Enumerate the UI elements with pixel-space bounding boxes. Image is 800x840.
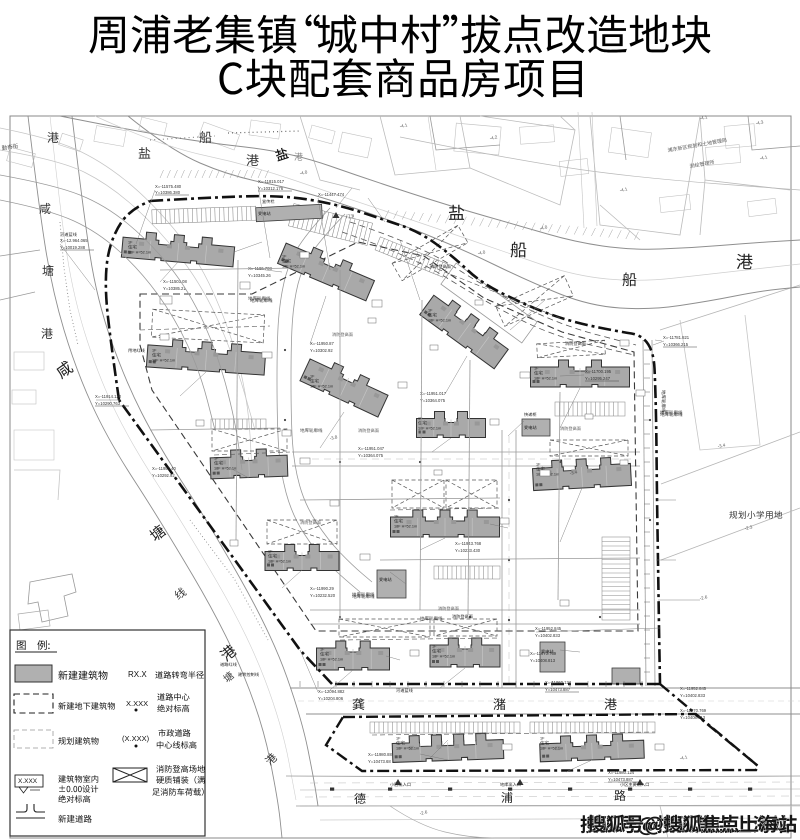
svg-text:18F H=52.1m: 18F H=52.1m bbox=[534, 377, 557, 381]
svg-text:1F: 1F bbox=[320, 648, 325, 652]
svg-text:1F: 1F bbox=[310, 375, 315, 379]
svg-text:Y=10232.520: Y=10232.520 bbox=[310, 593, 336, 598]
svg-text:Y=10312.176: Y=10312.176 bbox=[258, 186, 284, 191]
svg-text:18F H=52.1m: 18F H=52.1m bbox=[396, 747, 419, 751]
svg-text:X=-11914.120: X=-11914.120 bbox=[95, 394, 122, 399]
svg-text:Y=10233.430: Y=10233.430 bbox=[455, 548, 481, 553]
svg-text:Y=10386.380: Y=10386.380 bbox=[155, 190, 181, 195]
svg-text:Y=10364.075: Y=10364.075 bbox=[358, 453, 384, 458]
svg-text:X=-11952.845: X=-11952.845 bbox=[680, 686, 707, 691]
svg-text:18F H=52.1m: 18F H=52.1m bbox=[394, 525, 417, 529]
svg-text:X=-11990.29: X=-11990.29 bbox=[310, 586, 334, 591]
svg-text:Y=10473.887: Y=10473.887 bbox=[608, 777, 634, 782]
svg-text:X=-11951.047: X=-11951.047 bbox=[358, 446, 385, 451]
svg-text:Y=10385.21: Y=10385.21 bbox=[163, 286, 186, 291]
svg-text:(X.XXX): (X.XXX) bbox=[122, 734, 150, 743]
svg-text:X=-11700.195: X=-11700.195 bbox=[585, 369, 612, 374]
svg-text:X=-11575.480: X=-11575.480 bbox=[155, 184, 182, 189]
svg-text:18F H=52.1m: 18F H=52.1m bbox=[320, 658, 343, 662]
svg-text:18F H=52.1m: 18F H=52.1m bbox=[128, 251, 151, 255]
svg-text:1F: 1F bbox=[282, 255, 287, 259]
svg-text:X=-11970.769: X=-11970.769 bbox=[680, 708, 707, 713]
svg-text:1F: 1F bbox=[428, 309, 433, 313]
svg-text:Y=10302.92: Y=10302.92 bbox=[310, 348, 333, 353]
svg-text:1F: 1F bbox=[536, 463, 541, 467]
svg-text:1F: 1F bbox=[152, 349, 157, 353]
svg-text:Y=10345.26: Y=10345.26 bbox=[248, 273, 271, 278]
svg-text:X.XXX: X.XXX bbox=[126, 699, 148, 708]
svg-text:Y=10402.833: Y=10402.833 bbox=[680, 693, 706, 698]
svg-text:Y=10402.833: Y=10402.833 bbox=[535, 633, 561, 638]
svg-text:X=-11950.40: X=-11950.40 bbox=[152, 466, 176, 471]
svg-text:X=-12094.882: X=-12094.882 bbox=[318, 689, 345, 694]
svg-text:X=-11447.474: X=-11447.474 bbox=[318, 192, 345, 197]
svg-text:18F H=52.1m: 18F H=52.1m bbox=[268, 560, 291, 564]
svg-text:18F H=52.1m: 18F H=52.1m bbox=[428, 319, 451, 323]
svg-text:1F: 1F bbox=[534, 367, 539, 371]
svg-text:Y=10295.247: Y=10295.247 bbox=[585, 376, 611, 381]
svg-text:Y=10473.887: Y=10473.887 bbox=[545, 687, 571, 692]
svg-text:X=-12.964.065: X=-12.964.065 bbox=[60, 238, 88, 243]
svg-text:Y=10408.813: Y=10408.813 bbox=[680, 715, 706, 720]
svg-text:1F: 1F bbox=[128, 241, 133, 245]
svg-text:X=-11950.87: X=-11950.87 bbox=[310, 341, 334, 346]
svg-text:1F: 1F bbox=[214, 457, 219, 461]
svg-text:X=-11980.124: X=-11980.124 bbox=[608, 770, 635, 775]
svg-text:RX.X: RX.X bbox=[128, 670, 147, 679]
svg-text:18F H=52.1m: 18F H=52.1m bbox=[152, 359, 175, 363]
svg-text:Y=10408.813: Y=10408.813 bbox=[530, 658, 556, 663]
svg-text:X=-11960.124: X=-11960.124 bbox=[545, 680, 572, 685]
svg-text:18F H=52.1m: 18F H=52.1m bbox=[310, 385, 333, 389]
svg-text:Y=10364.075: Y=10364.075 bbox=[420, 398, 446, 403]
svg-text:X=-11781.821: X=-11781.821 bbox=[663, 335, 690, 340]
svg-text:Y=10366.215: Y=10366.215 bbox=[663, 342, 689, 347]
svg-text:Y=10204.806: Y=10204.806 bbox=[318, 696, 344, 701]
svg-text:1F: 1F bbox=[432, 645, 437, 649]
svg-text:1F: 1F bbox=[394, 515, 399, 519]
svg-text:18F H=52.1m: 18F H=52.1m bbox=[432, 655, 455, 659]
svg-text:X=-11815.017: X=-11815.017 bbox=[258, 179, 285, 184]
svg-text:X=-11980.88: X=-11980.88 bbox=[368, 752, 392, 757]
svg-text:Y=10473.68: Y=10473.68 bbox=[368, 759, 391, 764]
svg-text:X=-11952.845: X=-11952.845 bbox=[535, 626, 562, 631]
svg-text:1F: 1F bbox=[418, 417, 423, 421]
svg-text:1F: 1F bbox=[540, 737, 545, 741]
svg-text:1F: 1F bbox=[268, 550, 273, 554]
svg-text:1F: 1F bbox=[396, 737, 401, 741]
svg-text:18F H=52.1m: 18F H=52.1m bbox=[540, 747, 563, 751]
svg-text:X.XXX: X.XXX bbox=[18, 778, 38, 785]
svg-text:Y=10292.92: Y=10292.92 bbox=[152, 473, 175, 478]
svg-text:X=-11951.017: X=-11951.017 bbox=[420, 391, 447, 396]
svg-text:X=-11503.08: X=-11503.08 bbox=[163, 279, 187, 284]
svg-text:Y=10290.763: Y=10290.763 bbox=[95, 401, 121, 406]
